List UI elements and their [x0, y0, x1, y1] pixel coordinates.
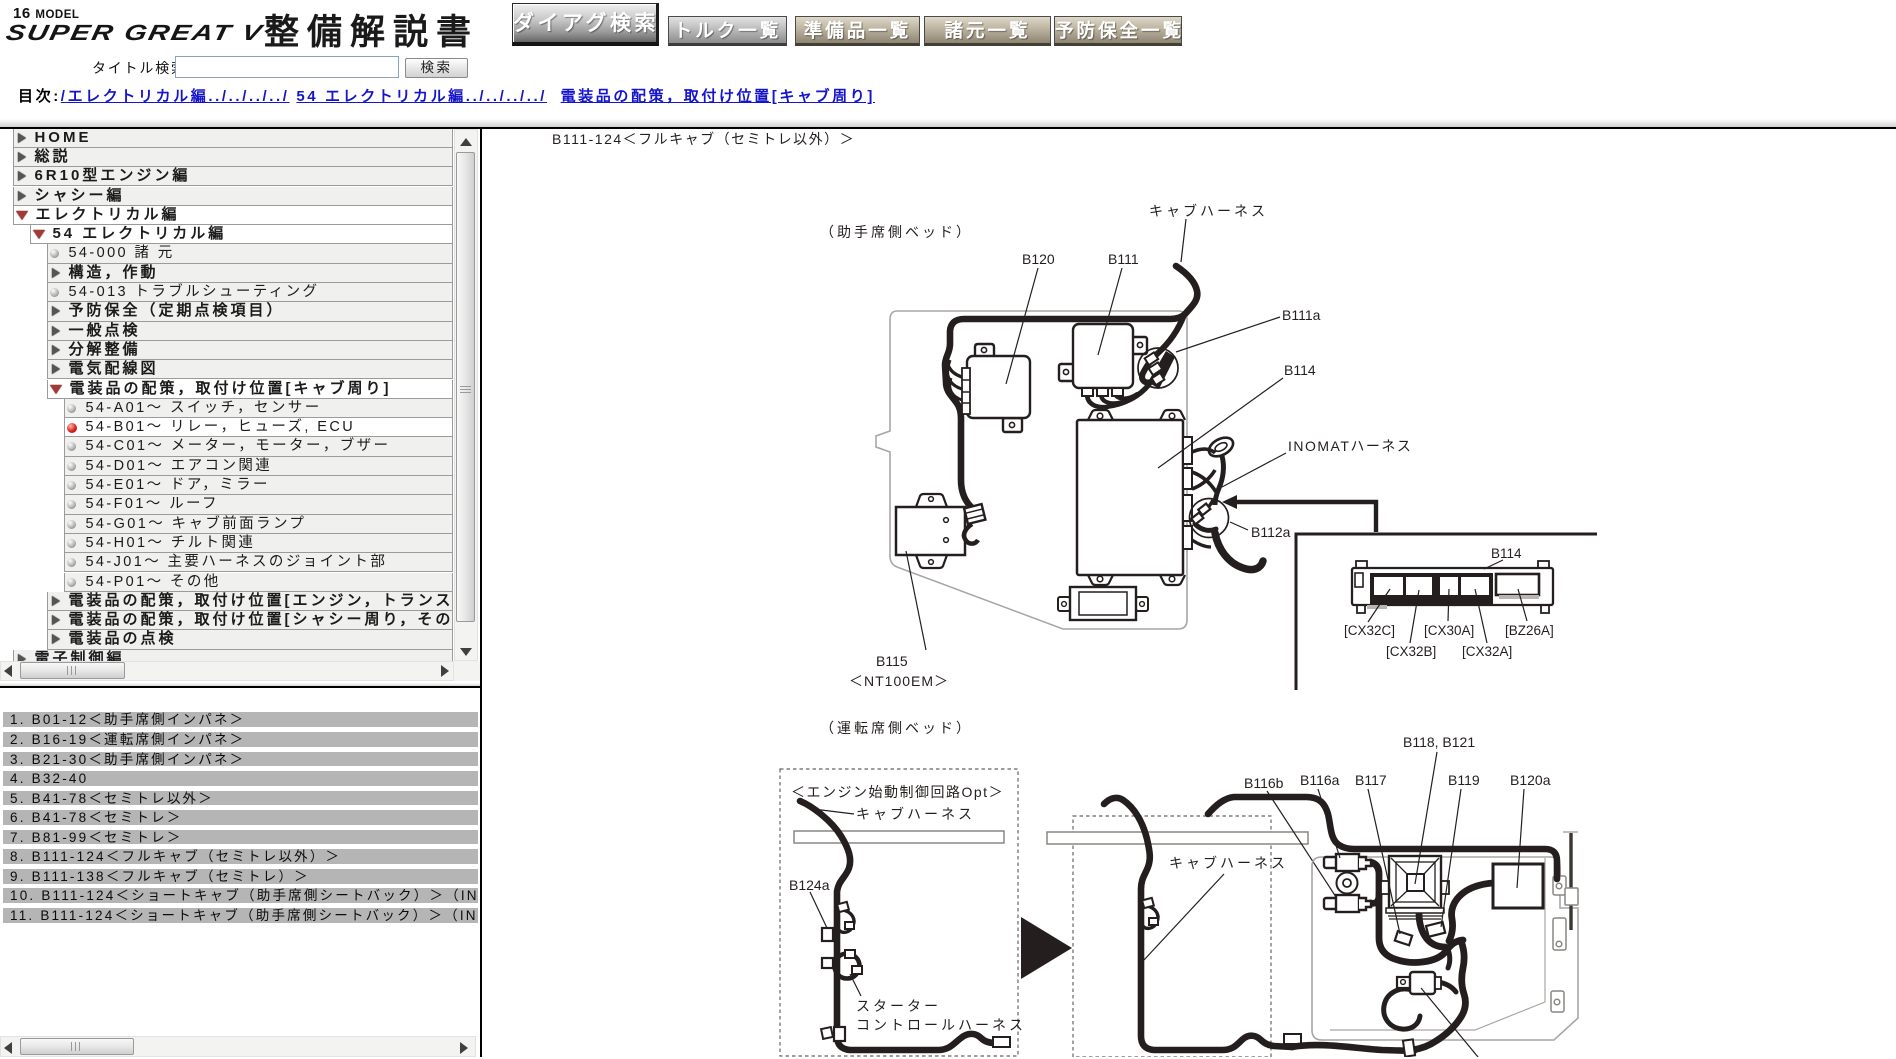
svg-text:（助手席側ベッド）: （助手席側ベッド）	[820, 224, 973, 240]
svg-text:B118, B121: B118, B121	[1403, 734, 1475, 750]
svg-text:B120a: B120a	[1510, 772, 1551, 788]
svg-text:B116b: B116b	[1244, 775, 1284, 791]
svg-text:B111-124＜フルキャブ（セミトレ以外）＞: B111-124＜フルキャブ（セミトレ以外）＞	[552, 131, 855, 147]
svg-text:＜エンジン始動制御回路Opt＞: ＜エンジン始動制御回路Opt＞	[791, 784, 1004, 800]
svg-text:[CX32B]: [CX32B]	[1386, 644, 1436, 659]
svg-text:B120: B120	[1022, 251, 1055, 267]
svg-text:[CX32A]: [CX32A]	[1462, 644, 1512, 659]
svg-text:[BZ26A]: [BZ26A]	[1505, 623, 1554, 638]
svg-text:キャブハーネス: キャブハーネス	[1149, 203, 1268, 219]
svg-text:B111a: B111a	[1282, 307, 1321, 323]
svg-text:B114: B114	[1491, 546, 1522, 561]
svg-text:B112a: B112a	[1251, 524, 1291, 540]
svg-text:B116a: B116a	[1300, 772, 1340, 788]
svg-text:キャブハーネス: キャブハーネス	[1169, 855, 1288, 871]
svg-text:（運転席側ベッド）: （運転席側ベッド）	[820, 720, 973, 736]
svg-text:INOMATハーネス: INOMATハーネス	[1288, 438, 1412, 454]
svg-text:B119: B119	[1448, 772, 1480, 788]
svg-text:B111: B111	[1108, 251, 1139, 267]
svg-text:[CX30A]: [CX30A]	[1424, 623, 1474, 638]
svg-text:キャブハーネス: キャブハーネス	[856, 806, 975, 822]
svg-text:B124a: B124a	[789, 877, 830, 893]
svg-text:スターター: スターター	[856, 998, 941, 1014]
svg-text:B114: B114	[1284, 362, 1316, 378]
svg-text:B117: B117	[1355, 772, 1387, 788]
svg-text:B115: B115	[876, 653, 908, 669]
svg-text:＜NT100EM＞: ＜NT100EM＞	[849, 673, 949, 689]
svg-text:[CX32C]: [CX32C]	[1344, 623, 1395, 638]
svg-text:コントロールハーネス: コントロールハーネス	[856, 1017, 1026, 1033]
